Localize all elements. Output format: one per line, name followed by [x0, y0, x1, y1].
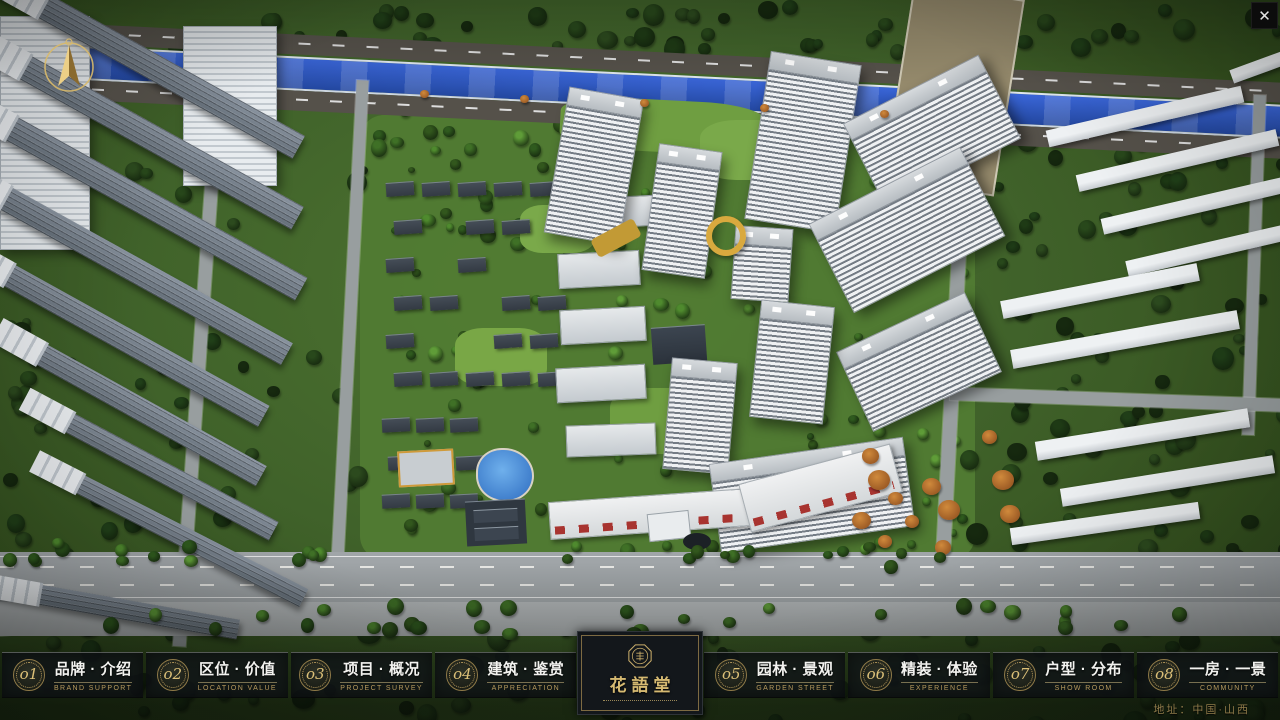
tree [768, 714, 783, 720]
tree [960, 450, 980, 470]
tree [464, 143, 477, 155]
nav-item-label-en: APPRECIATION [487, 682, 564, 692]
lane-marking [0, 584, 1280, 586]
tree [1114, 620, 1128, 631]
golden-ring-feature [706, 216, 746, 256]
courtyard-house [416, 493, 445, 508]
courtyard-house [458, 257, 487, 273]
autumn-tree [420, 90, 429, 98]
autumn-tree [905, 515, 919, 528]
tree [1078, 220, 1096, 239]
tree [28, 553, 40, 565]
tree [502, 628, 518, 641]
nav-number-badge: o7 [1004, 659, 1036, 691]
tree [103, 617, 119, 634]
courtyard-house [386, 257, 415, 273]
tree [537, 162, 549, 173]
courtyard-house [430, 295, 459, 311]
courtyard-house [494, 181, 523, 197]
tree [1154, 524, 1168, 537]
tree [101, 522, 118, 540]
tree [420, 214, 436, 227]
nav-item-number: o3 [306, 665, 325, 683]
tree [922, 497, 931, 506]
tree [1060, 605, 1072, 617]
nav-item-label-zh: 品牌 · 介绍 [54, 658, 132, 679]
tree [135, 378, 147, 391]
residential-slab [1010, 310, 1240, 369]
tree [399, 701, 413, 714]
tree [1004, 605, 1021, 619]
tree [535, 503, 548, 516]
tree [1123, 711, 1147, 720]
tree [1091, 29, 1108, 44]
tree [1071, 374, 1082, 383]
nav-number-badge: o1 [13, 659, 45, 691]
close-icon: ✕ [1258, 7, 1271, 25]
tree [1006, 241, 1020, 253]
courtyard-house [394, 371, 423, 387]
nav-item-number: o8 [1155, 665, 1174, 683]
tree [317, 604, 331, 616]
nav-item-o6[interactable]: o6精装 · 体验EXPERIENCE [848, 652, 989, 698]
courtyard-house [458, 181, 487, 197]
tree [934, 552, 947, 563]
tree [148, 551, 160, 562]
autumn-tree [862, 448, 879, 464]
nav-item-label-en: EXPERIENCE [901, 682, 978, 692]
tree [966, 523, 987, 545]
tree [1158, 4, 1172, 17]
logo-frame: 花語堂 [581, 635, 699, 711]
tree [390, 137, 404, 148]
tree [662, 541, 672, 551]
nav-item-label-en: GARDEN STREET [756, 682, 834, 692]
tree [1149, 454, 1160, 465]
tree [371, 139, 387, 157]
tree [1132, 406, 1145, 418]
nav-number-badge: o3 [299, 659, 331, 691]
tree [256, 610, 269, 622]
entrance-pavilion [465, 498, 527, 546]
tree [301, 618, 314, 632]
tower-roof [671, 358, 736, 382]
tree [306, 350, 322, 365]
tree [866, 33, 878, 46]
tree [875, 609, 887, 621]
nav-item-labels: 建筑 · 鉴赏APPRECIATION [487, 658, 564, 692]
tree [643, 4, 663, 25]
tree [1019, 219, 1033, 234]
tree [896, 548, 906, 559]
tree [528, 422, 540, 433]
autumn-tree [922, 478, 941, 495]
nav-item-labels: 户型 · 分布SHOW ROOM [1045, 658, 1122, 692]
logo-seal-icon [627, 643, 653, 669]
tree [7, 514, 24, 533]
tree [138, 706, 150, 717]
nav-item-o1[interactable]: o1品牌 · 介绍BRAND SUPPORT [2, 652, 143, 698]
courtyard-house [386, 333, 415, 349]
courtyard-house [394, 295, 423, 311]
courtyard-house [422, 181, 451, 197]
sales-presentation-app: ✕ o1品牌 · 介绍BRAND SUPPORTo2区位 · 价值LOCATIO… [0, 0, 1280, 720]
amenity-building [397, 449, 455, 488]
tree [446, 223, 454, 231]
nav-item-o3[interactable]: o3项目 · 概况PROJECT SURVEY [291, 652, 432, 698]
tree [410, 621, 427, 635]
nav-item-number: o7 [1011, 665, 1030, 683]
tree [209, 622, 222, 636]
tree [1037, 14, 1055, 31]
tree [52, 538, 64, 548]
tree [957, 514, 968, 524]
garden-flat [565, 422, 656, 457]
tree [917, 428, 928, 440]
nav-item-labels: 一房 · 一景COMMUNITY [1189, 658, 1266, 692]
nav-item-label-zh: 一房 · 一景 [1189, 658, 1266, 679]
project-tower [749, 299, 835, 424]
autumn-tree [938, 500, 960, 520]
nav-item-label-zh: 建筑 · 鉴赏 [487, 658, 564, 679]
courtyard-house [430, 371, 459, 387]
tree [182, 540, 197, 553]
nav-item-o4[interactable]: o4建筑 · 鉴赏APPRECIATION [435, 652, 576, 698]
nav-item-label-zh: 项目 · 概况 [340, 658, 423, 679]
tree [837, 546, 849, 557]
nav-group-right: o5园林 · 景观GARDEN STREETo6精装 · 体验EXPERIENC… [704, 652, 1278, 698]
tree [15, 532, 32, 547]
nav-item-o7[interactable]: o7户型 · 分布SHOW ROOM [993, 652, 1134, 698]
autumn-tree [760, 104, 769, 112]
tree [720, 551, 730, 560]
tree [1200, 530, 1214, 543]
tree [175, 186, 192, 203]
residential-slab [1000, 263, 1200, 319]
garden-flat [559, 306, 647, 345]
tree [1043, 472, 1058, 485]
garden-flat [555, 364, 647, 404]
tree [382, 622, 398, 638]
nav-item-labels: 区位 · 价值LOCATION VALUE [198, 658, 277, 692]
tree [782, 0, 798, 15]
courtyard-house [502, 371, 531, 387]
nav-item-label-en: PROJECT SURVEY [340, 682, 423, 692]
compass-north-icon [39, 36, 99, 96]
tree [1027, 716, 1045, 720]
tree [529, 143, 541, 157]
residential-slab [1010, 502, 1201, 545]
tree [878, 18, 893, 32]
tree [718, 13, 730, 24]
nav-item-label-zh: 园林 · 景观 [756, 658, 834, 679]
tree [174, 397, 189, 409]
tree [440, 208, 452, 219]
tree [448, 399, 461, 412]
nav-item-number: o4 [453, 665, 472, 683]
courtyard-house [494, 333, 523, 349]
nav-item-o2[interactable]: o2区位 · 价值LOCATION VALUE [146, 652, 287, 698]
nav-item-o8[interactable]: o8一房 · 一景COMMUNITY [1137, 652, 1278, 698]
tree [1173, 19, 1195, 40]
courtyard-house [386, 181, 415, 197]
tree [758, 1, 778, 19]
tree [687, 9, 700, 24]
tree [701, 28, 714, 40]
tree [1241, 515, 1259, 529]
nav-item-number: o5 [722, 665, 741, 683]
autumn-tree [982, 430, 997, 444]
tree [1155, 375, 1169, 389]
courtyard-house [466, 371, 495, 387]
tree [394, 6, 409, 20]
close-button[interactable]: ✕ [1251, 2, 1278, 29]
autumn-tree [868, 470, 890, 490]
logo-caption-line [603, 700, 677, 703]
tree [620, 605, 634, 619]
road-edge-line [0, 597, 1280, 598]
nav-item-labels: 品牌 · 介绍BRAND SUPPORT [54, 658, 132, 692]
tree [807, 433, 814, 440]
nav-item-labels: 精装 · 体验EXPERIENCE [901, 658, 978, 692]
tree [424, 440, 431, 447]
courtyard-house [502, 295, 531, 311]
tree [140, 168, 152, 179]
courtyard-house [450, 417, 479, 432]
courtyard-house [530, 333, 559, 349]
nav-number-badge: o4 [446, 659, 478, 691]
tree [1151, 295, 1172, 314]
tree [1029, 212, 1040, 221]
nav-item-labels: 园林 · 景观GARDEN STREET [756, 658, 834, 692]
nav-item-label-zh: 户型 · 分布 [1045, 658, 1122, 679]
tree [3, 473, 18, 487]
tree [500, 600, 517, 616]
tree [743, 545, 755, 558]
tree [430, 146, 441, 155]
tree [1058, 621, 1073, 635]
tree [474, 620, 490, 633]
autumn-tree [992, 470, 1014, 490]
tree [997, 258, 1008, 269]
nav-group-left: o1品牌 · 介绍BRAND SUPPORTo2区位 · 价值LOCATION … [2, 652, 576, 698]
nav-number-badge: o5 [715, 659, 747, 691]
project-logo-panel[interactable]: 花語堂 [577, 631, 703, 715]
tree [416, 13, 433, 28]
tree [848, 415, 859, 424]
autumn-tree [880, 110, 889, 118]
nav-item-label-zh: 区位 · 价值 [198, 658, 277, 679]
tree [743, 304, 754, 314]
nav-item-label-en: COMMUNITY [1189, 682, 1266, 692]
courtyard-house [466, 219, 495, 235]
nav-item-number: o6 [867, 665, 886, 683]
tree [562, 554, 573, 564]
tree [1007, 443, 1027, 462]
autumn-tree [852, 512, 871, 529]
tree [1071, 38, 1091, 57]
tree [1212, 347, 1234, 371]
tree [626, 8, 639, 18]
nav-item-number: o2 [163, 665, 182, 683]
tree [1036, 244, 1049, 257]
logo-title: 花語堂 [605, 671, 676, 696]
courtyard-house [382, 417, 411, 432]
tree [616, 295, 628, 307]
tree [20, 371, 37, 385]
courtyard-house [394, 219, 423, 235]
nav-item-o5[interactable]: o5园林 · 景观GARDEN STREET [704, 652, 845, 698]
street [950, 387, 1280, 412]
courtyard-house [416, 417, 445, 432]
project-address: 地址：中国·山西 [1153, 701, 1250, 717]
nav-item-labels: 项目 · 概况PROJECT SURVEY [340, 658, 423, 692]
nav-number-badge: o6 [860, 659, 892, 691]
tree [884, 560, 897, 574]
pavilion-roof [474, 526, 519, 541]
tree [227, 218, 240, 230]
pavilion-roof [473, 508, 518, 523]
tree [1124, 30, 1138, 43]
tree [528, 7, 546, 25]
aerial-masterplan-scene[interactable] [0, 0, 1280, 720]
tree [417, 704, 438, 720]
nav-item-label-zh: 精装 · 体验 [901, 658, 978, 679]
tree [267, 386, 280, 396]
tree [1050, 419, 1070, 438]
courtyard-house [538, 295, 567, 311]
tree [184, 555, 198, 567]
autumn-tree [888, 492, 903, 505]
nav-item-number: o1 [20, 665, 39, 683]
tree [367, 622, 381, 634]
tree [958, 713, 971, 720]
tree [450, 159, 461, 169]
autumn-tree [640, 99, 649, 107]
residential-slab [1060, 455, 1275, 506]
swimming-pond [476, 448, 534, 502]
nav-item-label-en: BRAND SUPPORT [54, 682, 132, 692]
nav-number-badge: o2 [157, 659, 189, 691]
tree [1128, 182, 1141, 195]
tree [115, 544, 128, 557]
courtyard-house [502, 219, 531, 235]
nav-item-label-en: LOCATION VALUE [198, 682, 277, 692]
courtyard-house [382, 493, 411, 508]
tree [238, 361, 250, 372]
autumn-tree [1000, 505, 1020, 523]
tree [3, 553, 18, 567]
tree [1169, 172, 1187, 191]
tree [46, 636, 61, 649]
nav-item-label-en: SHOW ROOM [1045, 682, 1122, 692]
tree [571, 541, 582, 552]
tree [451, 697, 471, 713]
project-tower [662, 357, 738, 474]
nav-number-badge: o8 [1148, 659, 1180, 691]
autumn-tree [520, 95, 529, 103]
